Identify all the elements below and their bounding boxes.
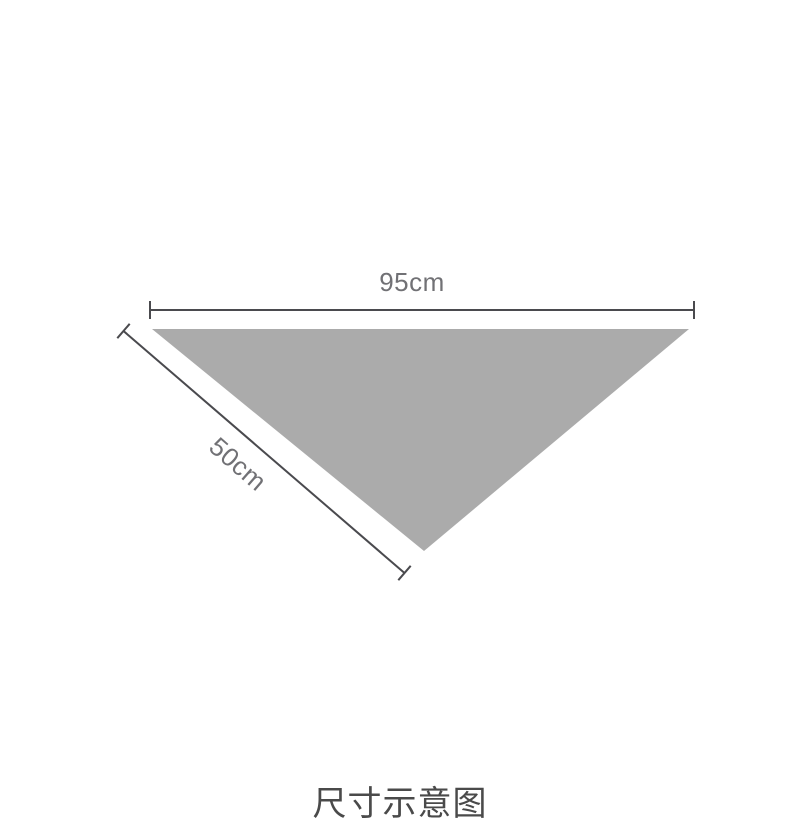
size-diagram-caption: 尺寸示意图	[313, 786, 488, 823]
top-width-dimension-line	[150, 301, 694, 319]
diagram-canvas	[0, 0, 800, 800]
product-size-diagram: 95cm 50cm 尺寸示意图	[0, 0, 800, 800]
top-width-label: 95cm	[379, 269, 445, 295]
